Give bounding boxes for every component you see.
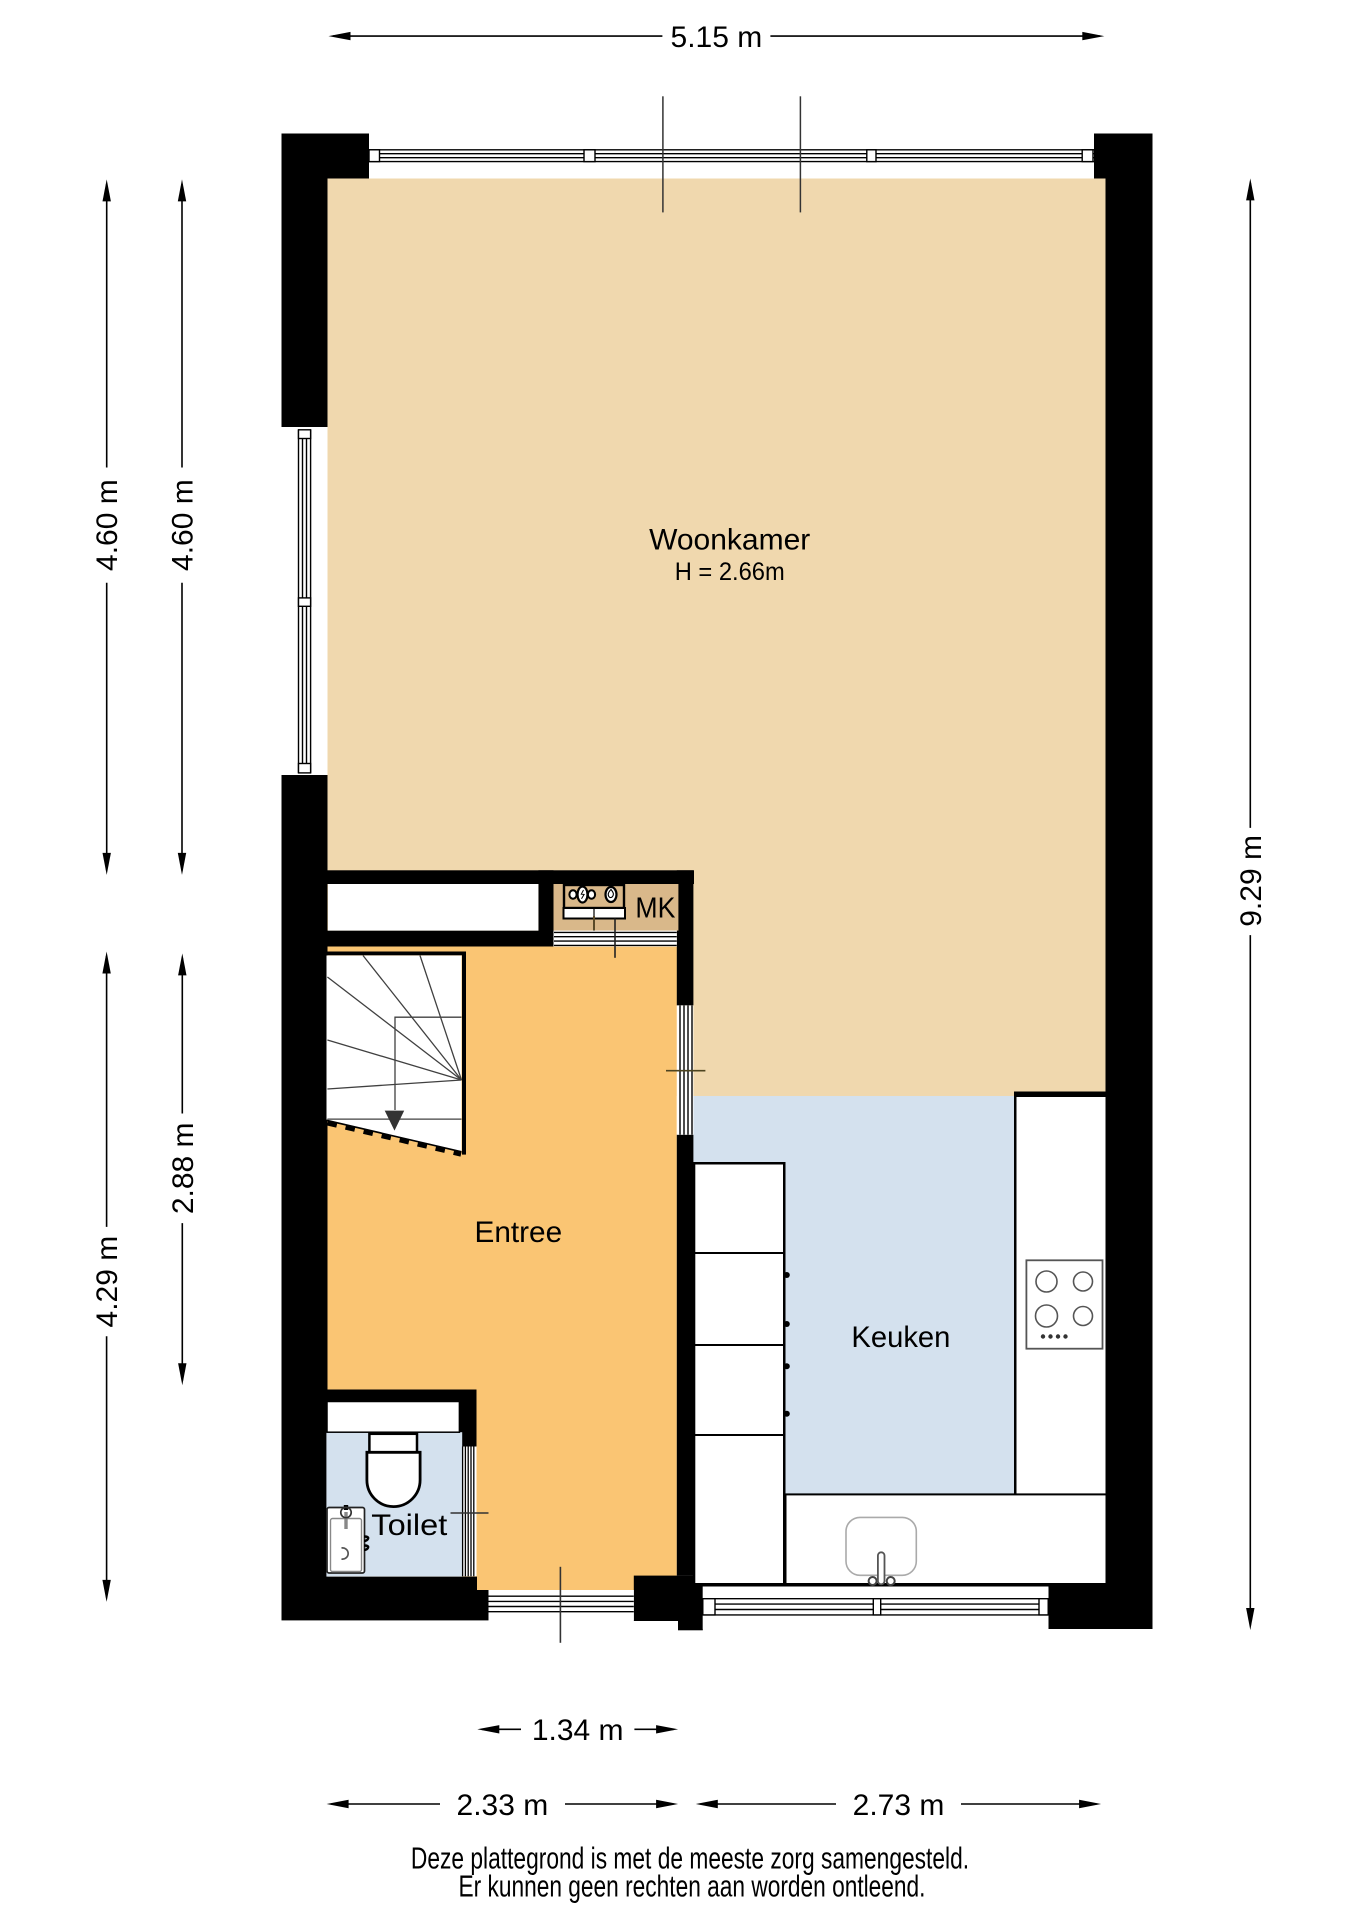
svg-text:1.34 m: 1.34 m bbox=[532, 1714, 624, 1747]
svg-text:4.60 m: 4.60 m bbox=[91, 479, 124, 571]
svg-text:Woonkamer: Woonkamer bbox=[649, 523, 810, 556]
svg-text:Er kunnen geen rechten aan wor: Er kunnen geen rechten aan worden ontlee… bbox=[459, 1869, 926, 1904]
svg-text:MK: MK bbox=[635, 893, 676, 925]
svg-text:5.15 m: 5.15 m bbox=[671, 21, 763, 54]
svg-text:H = 2.66m: H = 2.66m bbox=[675, 558, 785, 586]
svg-text:4.60 m: 4.60 m bbox=[167, 479, 200, 571]
svg-text:4.29 m: 4.29 m bbox=[91, 1236, 124, 1328]
svg-text:2.73 m: 2.73 m bbox=[853, 1789, 945, 1822]
svg-text:Entree: Entree bbox=[475, 1216, 563, 1249]
svg-text:2.33 m: 2.33 m bbox=[457, 1789, 549, 1822]
svg-text:Toilet: Toilet bbox=[371, 1509, 448, 1542]
svg-text:Keuken: Keuken bbox=[851, 1321, 950, 1354]
svg-text:2.88 m: 2.88 m bbox=[167, 1122, 200, 1214]
svg-text:9.29 m: 9.29 m bbox=[1235, 835, 1268, 927]
